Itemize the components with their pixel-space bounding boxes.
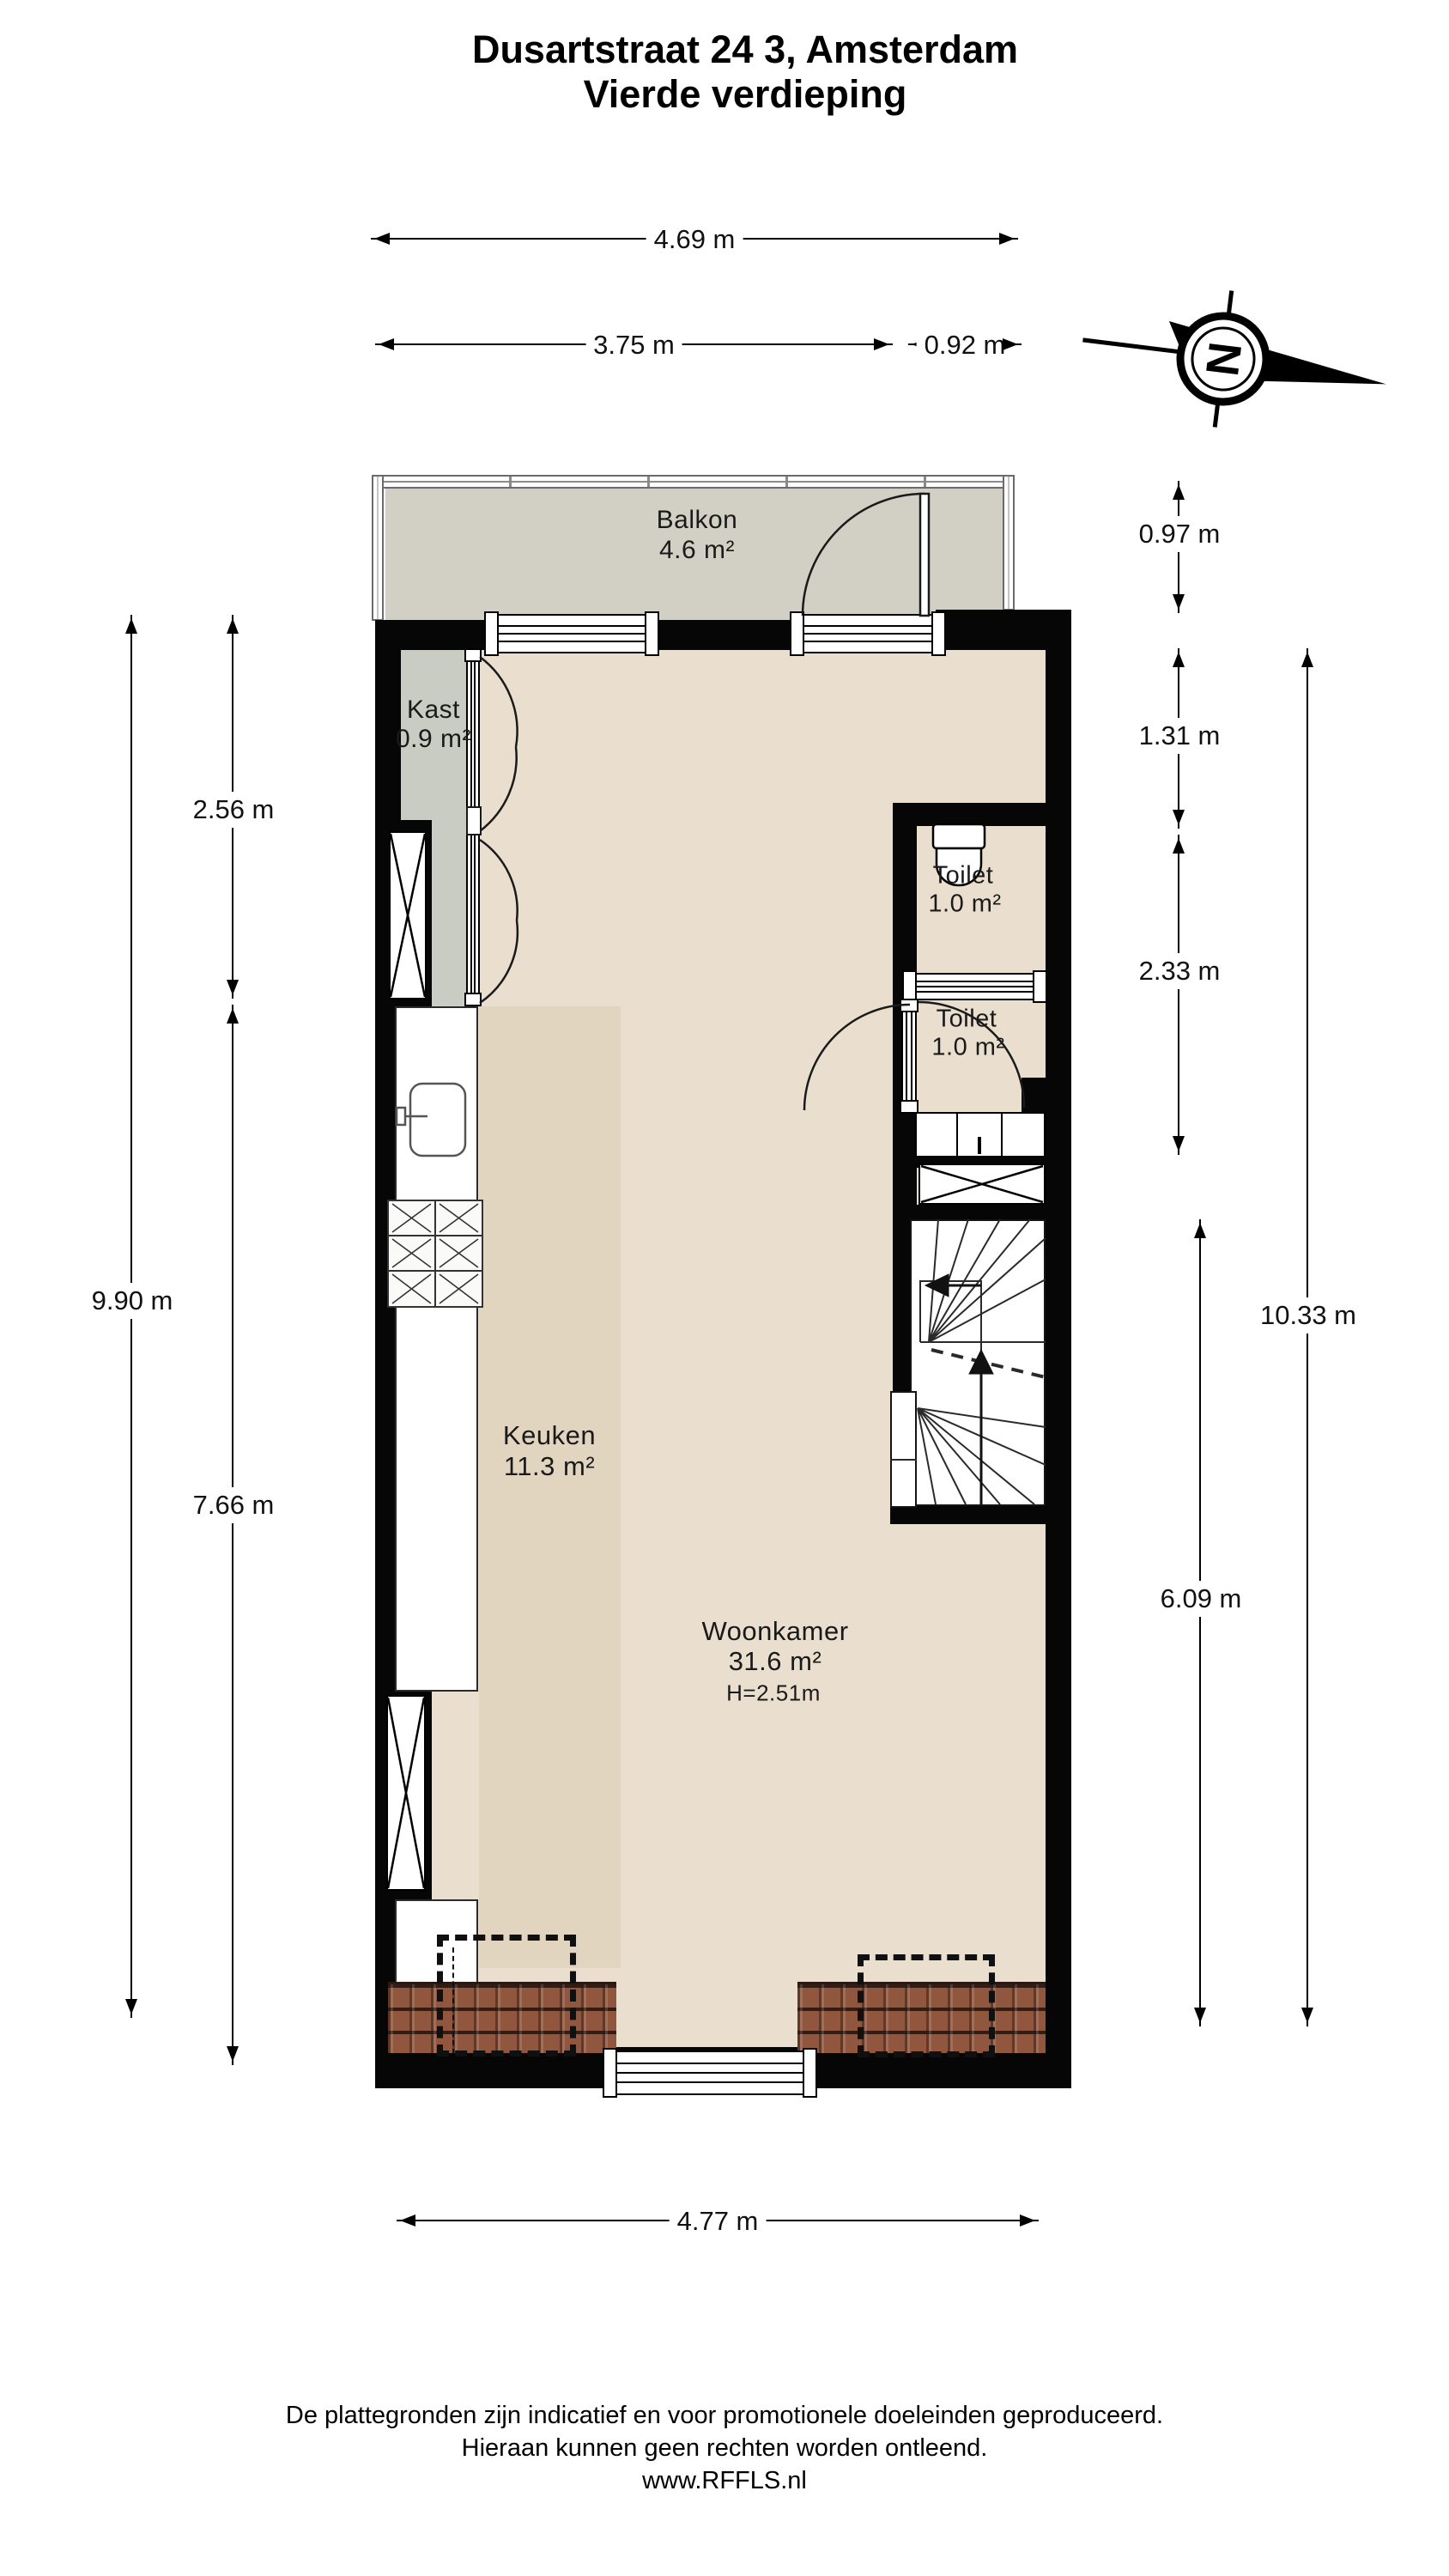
balcony-door [803, 494, 929, 616]
bifold-arc [480, 747, 517, 831]
dim-right-upper: 1.31 m [1178, 648, 1179, 829]
floorplan-page: { "title": {"line1": "Dusartstraat 24 3,… [0, 0, 1449, 2576]
shaft-crosses [388, 834, 1043, 1888]
sink-tap [397, 1108, 427, 1125]
dim-top-left: 3.75 m [375, 343, 893, 345]
bifold-arc [480, 657, 518, 747]
dim-right-lower: 6.09 m [1199, 1219, 1201, 2026]
sink-basin [410, 1084, 465, 1156]
room-area-balkon: 4.6 m² [659, 536, 735, 565]
dim-label: 2.33 m [1131, 953, 1228, 989]
compass-west-line [1082, 340, 1180, 352]
washbasin [957, 1114, 1002, 1156]
dim-label: 2.56 m [185, 792, 282, 828]
bifold-arc [480, 840, 518, 920]
room-label-toilet2: Toilet [937, 1005, 997, 1034]
room-label-balkon: Balkon [657, 506, 738, 535]
dim-label: 3.75 m [585, 327, 682, 363]
dim-label: 9.90 m [84, 1283, 181, 1319]
kitchen-sink [397, 1084, 465, 1156]
stair-treads [890, 1219, 1046, 1504]
dim-left-upper: 2.56 m [232, 615, 233, 999]
dim-right-mid: 2.33 m [1178, 835, 1179, 1155]
shaft-x [388, 1698, 424, 1888]
dim-right-balcony: 0.97 m [1178, 481, 1179, 613]
dim-label: 1.31 m [1131, 718, 1228, 754]
room-label-toilet1: Toilet [933, 862, 994, 890]
shaft-x [391, 834, 425, 997]
door-leaf [920, 494, 929, 616]
stair-direction-arrows [925, 1274, 993, 1504]
room-area-kast: 0.9 m² [396, 725, 471, 754]
closet-bifold-arcs [467, 657, 518, 1003]
dim-label: 4.69 m [646, 222, 743, 258]
room-label-woonkamer: Woonkamer [701, 1616, 848, 1647]
room-area-toilet1: 1.0 m² [928, 890, 1001, 919]
stair-flight-edges [920, 1281, 1046, 1504]
shaft-x [921, 1166, 1043, 1202]
dim-bottom-total: 4.77 m [397, 2220, 1039, 2221]
dim-left-outer: 9.90 m [130, 615, 132, 2018]
dim-top-total: 4.69 m [371, 238, 1018, 240]
entry-door-arc [804, 1005, 910, 1110]
dim-label: 0.97 m [1131, 516, 1228, 552]
compass-icon: N [1074, 273, 1395, 447]
dim-label: 10.33 m [1252, 1297, 1364, 1334]
dim-label: 6.09 m [1153, 1581, 1250, 1617]
room-height-woonkamer: H=2.51m [726, 1680, 821, 1707]
arrow-head-left [925, 1274, 949, 1297]
dim-top-right: 0.92 m [908, 343, 1022, 345]
room-label-kast: Kast [407, 696, 460, 725]
room-label-keuken: Keuken [503, 1420, 596, 1451]
compass-letter: N [1196, 339, 1251, 379]
room-area-toilet2: 1.0 m² [931, 1034, 1004, 1062]
dim-right-total: 10.33 m [1307, 648, 1308, 2026]
bifold-arc [480, 920, 518, 1003]
arrow-head-up [969, 1350, 993, 1374]
disclaimer-line-1: De plattegronden zijn indicatief en voor… [286, 2402, 1163, 2430]
door-swing-arc [804, 1005, 910, 1110]
disclaimer-line-2: Hieraan kunnen geen rechten worden ontle… [462, 2434, 988, 2463]
dim-label: 4.77 m [670, 2203, 767, 2239]
dim-left-lower: 7.66 m [232, 1005, 233, 2065]
room-area-woonkamer: 31.6 m² [729, 1646, 822, 1677]
dim-label: 0.92 m [917, 327, 1014, 363]
website-link: www.RFFLS.nl [642, 2467, 807, 2495]
stove [388, 1200, 482, 1307]
dim-label: 7.66 m [185, 1487, 282, 1523]
bifold-hinge [467, 807, 481, 835]
plan-linework: N [0, 0, 1449, 2576]
room-area-keuken: 11.3 m² [504, 1451, 595, 1482]
door-swing-arc [803, 494, 925, 616]
toilet-tank [933, 824, 985, 848]
